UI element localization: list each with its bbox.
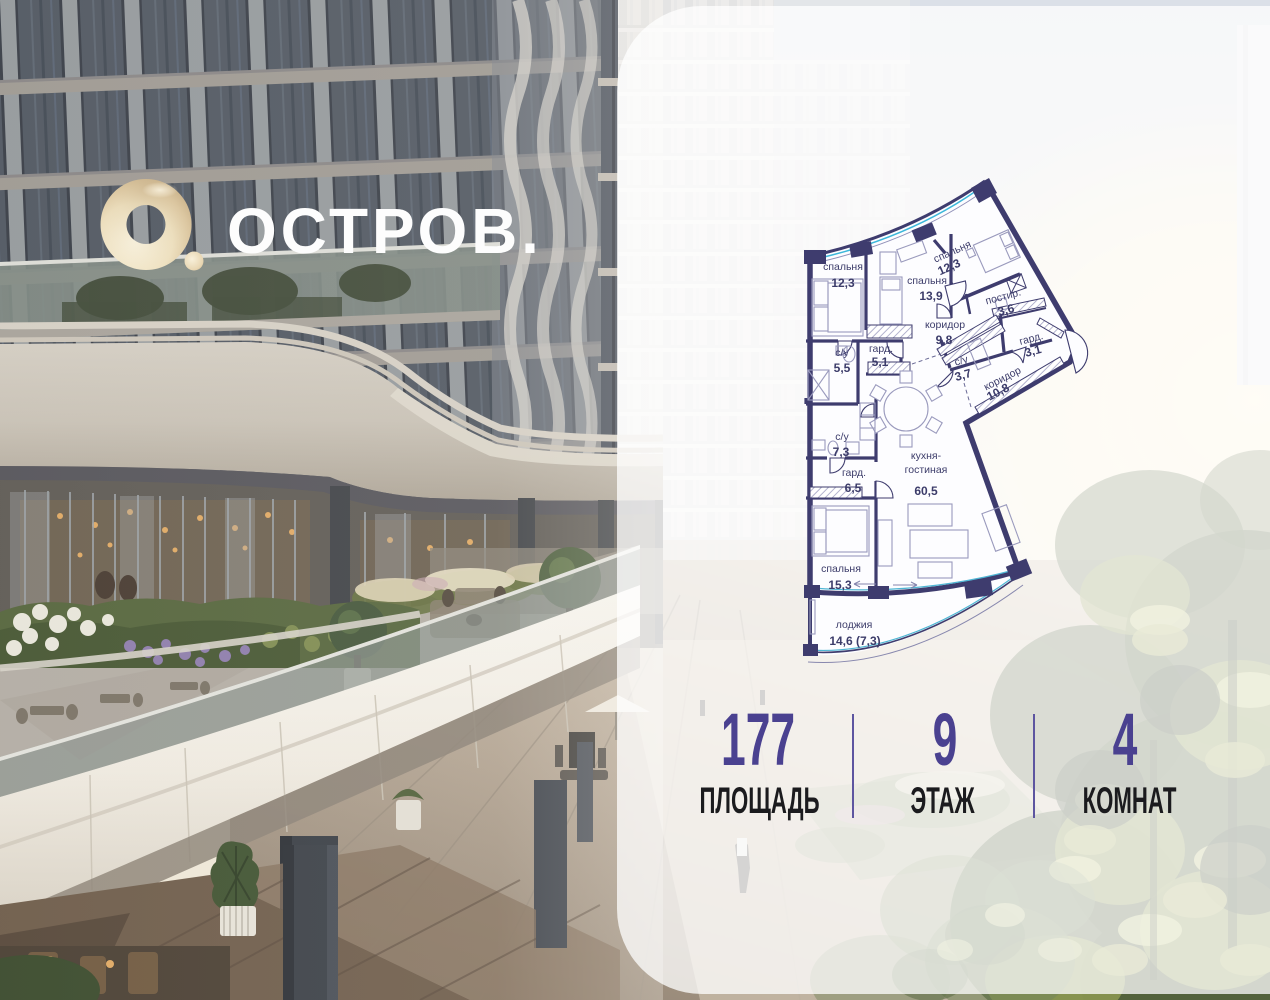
svg-text:5,5: 5,5	[834, 361, 851, 375]
svg-text:спальня: спальня	[821, 563, 861, 575]
svg-text:7,3: 7,3	[833, 445, 850, 459]
svg-text:9,8: 9,8	[936, 333, 953, 347]
svg-text:коридор: коридор	[925, 319, 965, 331]
svg-text:лоджия: лоджия	[836, 619, 873, 631]
svg-text:14,6 (7,3): 14,6 (7,3)	[829, 634, 880, 648]
svg-text:15,3: 15,3	[828, 578, 852, 592]
svg-text:гард.: гард.	[842, 467, 866, 479]
svg-text:гостиная: гостиная	[905, 464, 948, 476]
svg-text:с/у: с/у	[835, 431, 849, 443]
svg-text:13,9: 13,9	[919, 289, 943, 303]
svg-text:спальня: спальня	[823, 261, 863, 273]
svg-text:с/у: с/у	[835, 347, 849, 359]
svg-text:5,1: 5,1	[872, 355, 889, 369]
svg-text:кухня-: кухня-	[911, 450, 942, 462]
svg-text:гард.: гард.	[869, 343, 893, 355]
svg-text:12,3: 12,3	[831, 276, 855, 290]
svg-text:6,5: 6,5	[845, 481, 862, 495]
svg-text:60,5: 60,5	[914, 484, 938, 498]
